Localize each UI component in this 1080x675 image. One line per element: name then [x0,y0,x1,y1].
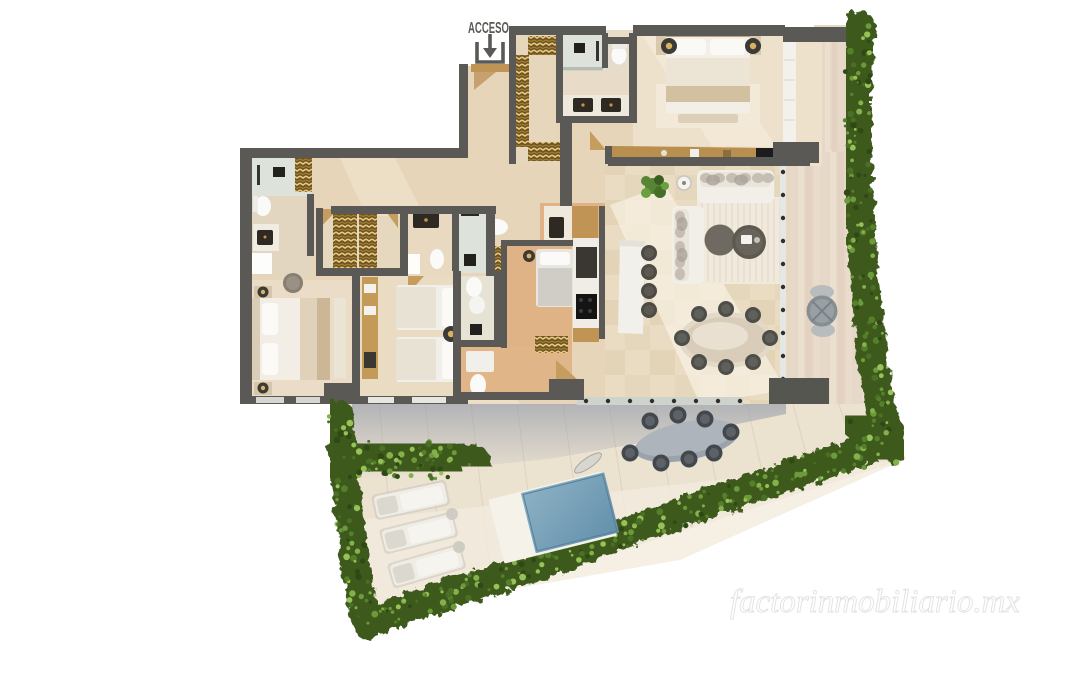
svg-text:factorinmobiliario.mx: factorinmobiliario.mx [730,584,1020,620]
